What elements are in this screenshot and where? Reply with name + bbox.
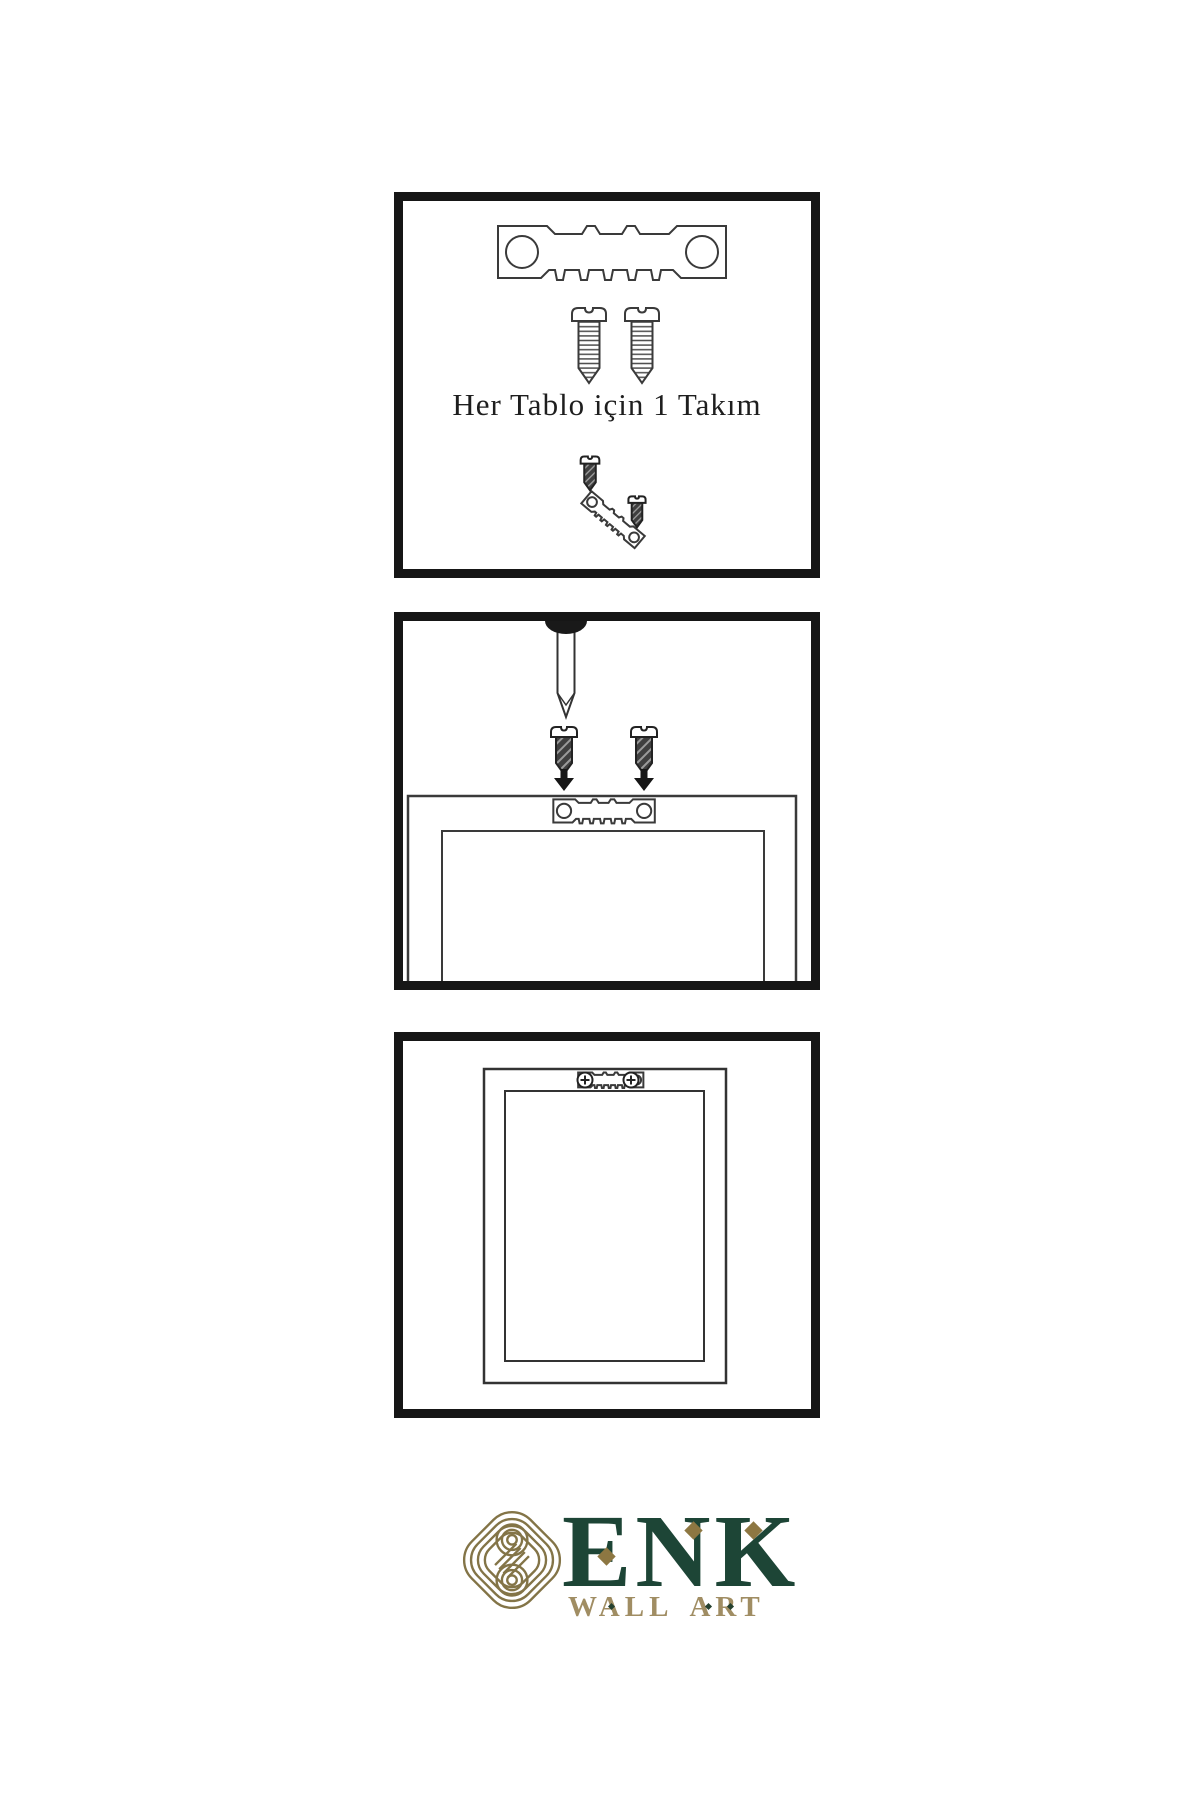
hardware-kit-illustration	[403, 201, 811, 569]
sawtooth-hanger-icon	[498, 226, 726, 280]
phillips-screw-icon	[624, 1073, 639, 1088]
arrow-down-icon	[554, 769, 574, 791]
dark-screw-icon	[631, 727, 657, 774]
screw-icon	[625, 308, 659, 383]
phillips-screw-icon	[578, 1073, 593, 1088]
frame-ready-illustration	[403, 1041, 811, 1409]
brand-subtitle: WALL ART	[568, 1593, 765, 1622]
step-panel-hardware-kit: Her Tablo için 1 Takım	[394, 192, 820, 578]
dark-screw-icon	[628, 496, 645, 527]
instruction-sheet: { "page": {"background": "#ffffff"}, "pa…	[0, 0, 1200, 1800]
frame-back-inner-outline	[442, 831, 764, 981]
knot-logo-icon	[452, 1496, 572, 1624]
sawtooth-hanger-icon	[553, 799, 654, 823]
dark-screw-icon	[551, 727, 577, 774]
nail-icon	[545, 621, 587, 717]
frame-back-inner-outline	[505, 1091, 704, 1361]
kit-caption: Her Tablo için 1 Takım	[403, 387, 811, 423]
frame-back-icon	[484, 1069, 726, 1383]
dark-screw-icon	[581, 456, 600, 490]
brand-name: ENK	[562, 1500, 799, 1604]
step-panel-frame-ready	[394, 1032, 820, 1418]
screw-icon	[572, 308, 606, 383]
attach-hanger-illustration	[403, 621, 811, 981]
arrow-down-icon	[634, 769, 654, 791]
step-panel-attach-hanger	[394, 612, 820, 990]
